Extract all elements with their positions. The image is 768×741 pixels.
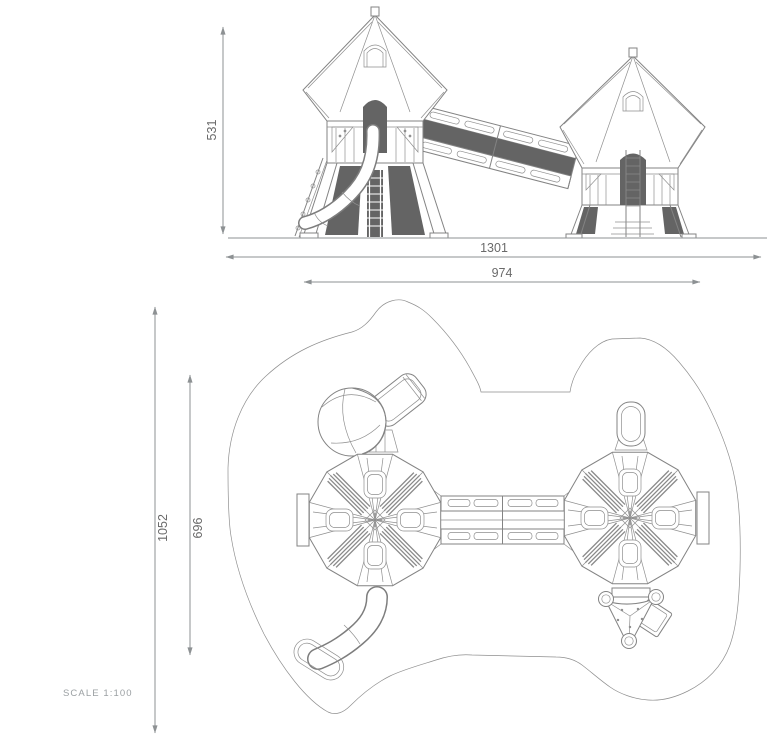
dim-label-platform-depth: 696 [191,518,205,539]
drawing-sheet: 531 1301 974 [0,0,768,741]
left-tower-plan [309,454,440,585]
left-tower-legs [300,163,448,238]
elevation-view [228,7,767,238]
gable-window [620,154,646,206]
ladder-plan [615,402,647,450]
dim-label-height: 531 [205,120,219,141]
triangle-climber-plan [599,588,673,649]
dim-label-platform-width: 974 [492,266,513,280]
left-tower-side-panel [297,494,309,546]
plan-dimensions: 1052 696 [155,307,205,733]
right-tower-legs [566,205,696,238]
right-tower-elevation [560,48,705,238]
bridge-elevation [413,106,579,189]
plan-view [228,300,740,714]
scale-label: SCALE 1:100 [63,688,133,699]
right-tower-plan [564,452,695,583]
spiral-climber-plan [318,369,431,456]
dim-label-overall-width: 1301 [480,241,508,255]
right-tower-roof [560,56,705,168]
roof-finial [371,7,379,16]
right-tower-side-panel [697,492,709,544]
dim-label-overall-depth: 1052 [156,514,170,542]
bridge-plan [416,480,589,560]
roof-finial [629,48,637,57]
playground-technical-drawing: 531 1301 974 [0,0,768,741]
slide-plan [289,597,377,685]
